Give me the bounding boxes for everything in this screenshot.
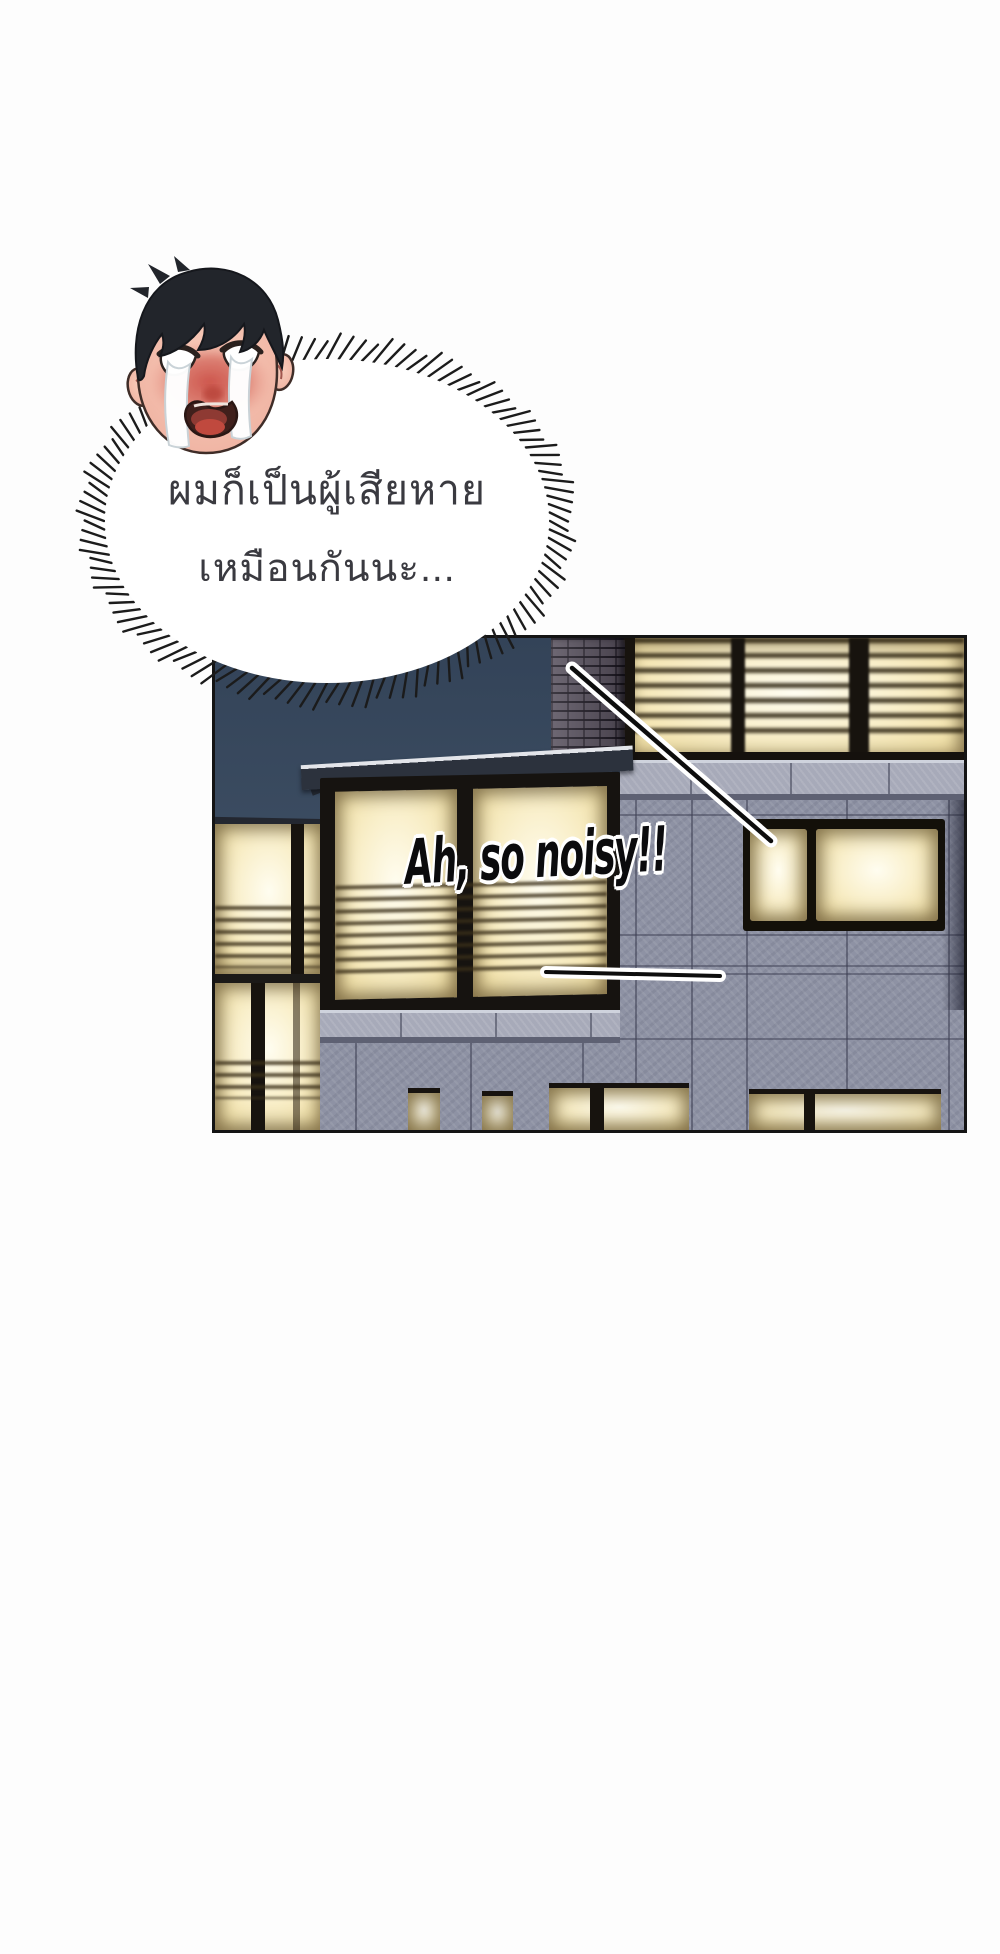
crying-face xyxy=(116,256,296,466)
thai-dialogue-line-1: ผมก็เป็นผู้เสียหาย xyxy=(168,458,486,523)
open-sad-mouth xyxy=(185,401,237,436)
caption-text: Ah, so noisy!! xyxy=(403,812,669,899)
nose-blush xyxy=(203,386,223,402)
comic-page: Ah, so noisy!! ผมก็เป็นผู้เสียหาย เหมือน… xyxy=(0,0,1000,1954)
thai-dialogue-line-2: เหมือนกันนะ... xyxy=(198,537,455,599)
